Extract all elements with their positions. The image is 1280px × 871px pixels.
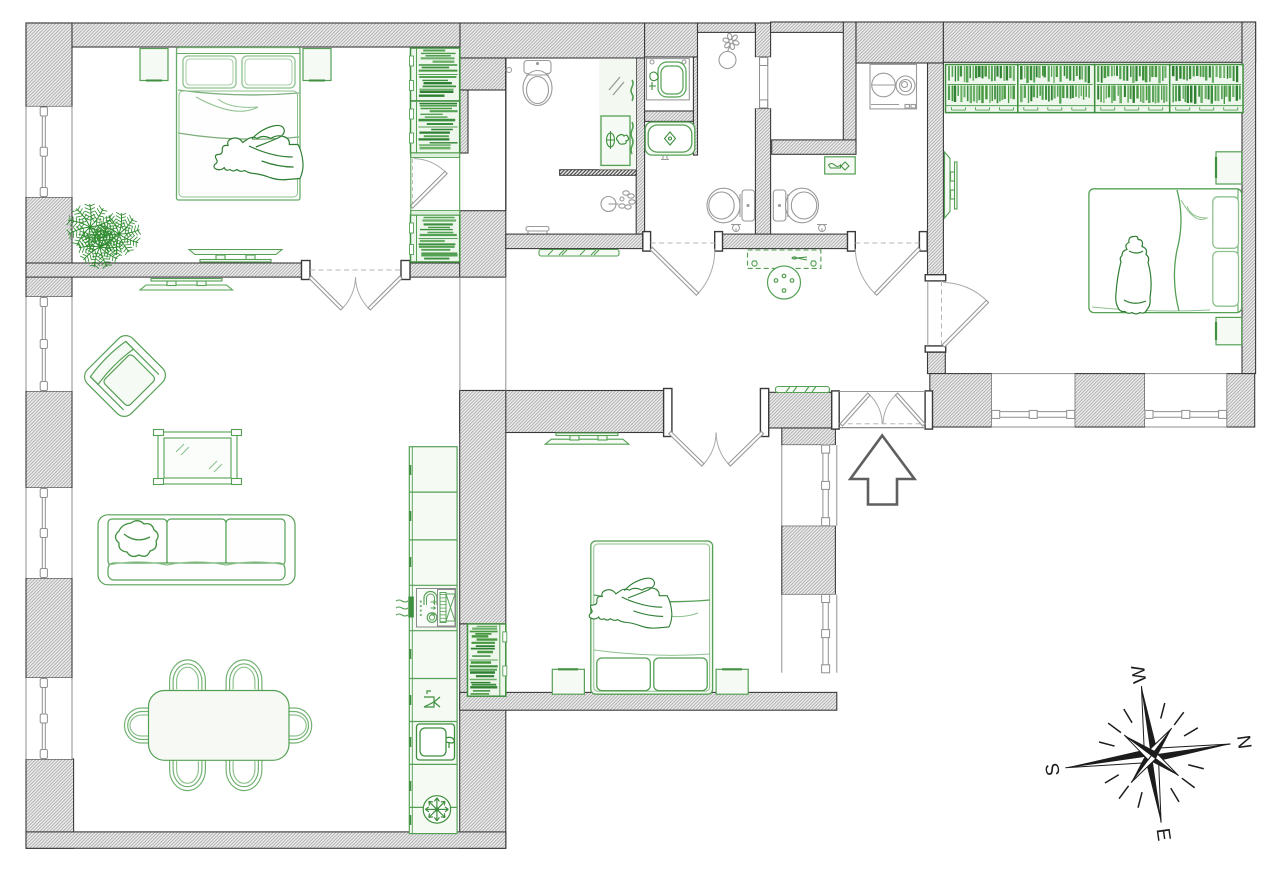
svg-text:N: N xyxy=(1232,734,1255,751)
svg-text:W: W xyxy=(1128,664,1151,685)
